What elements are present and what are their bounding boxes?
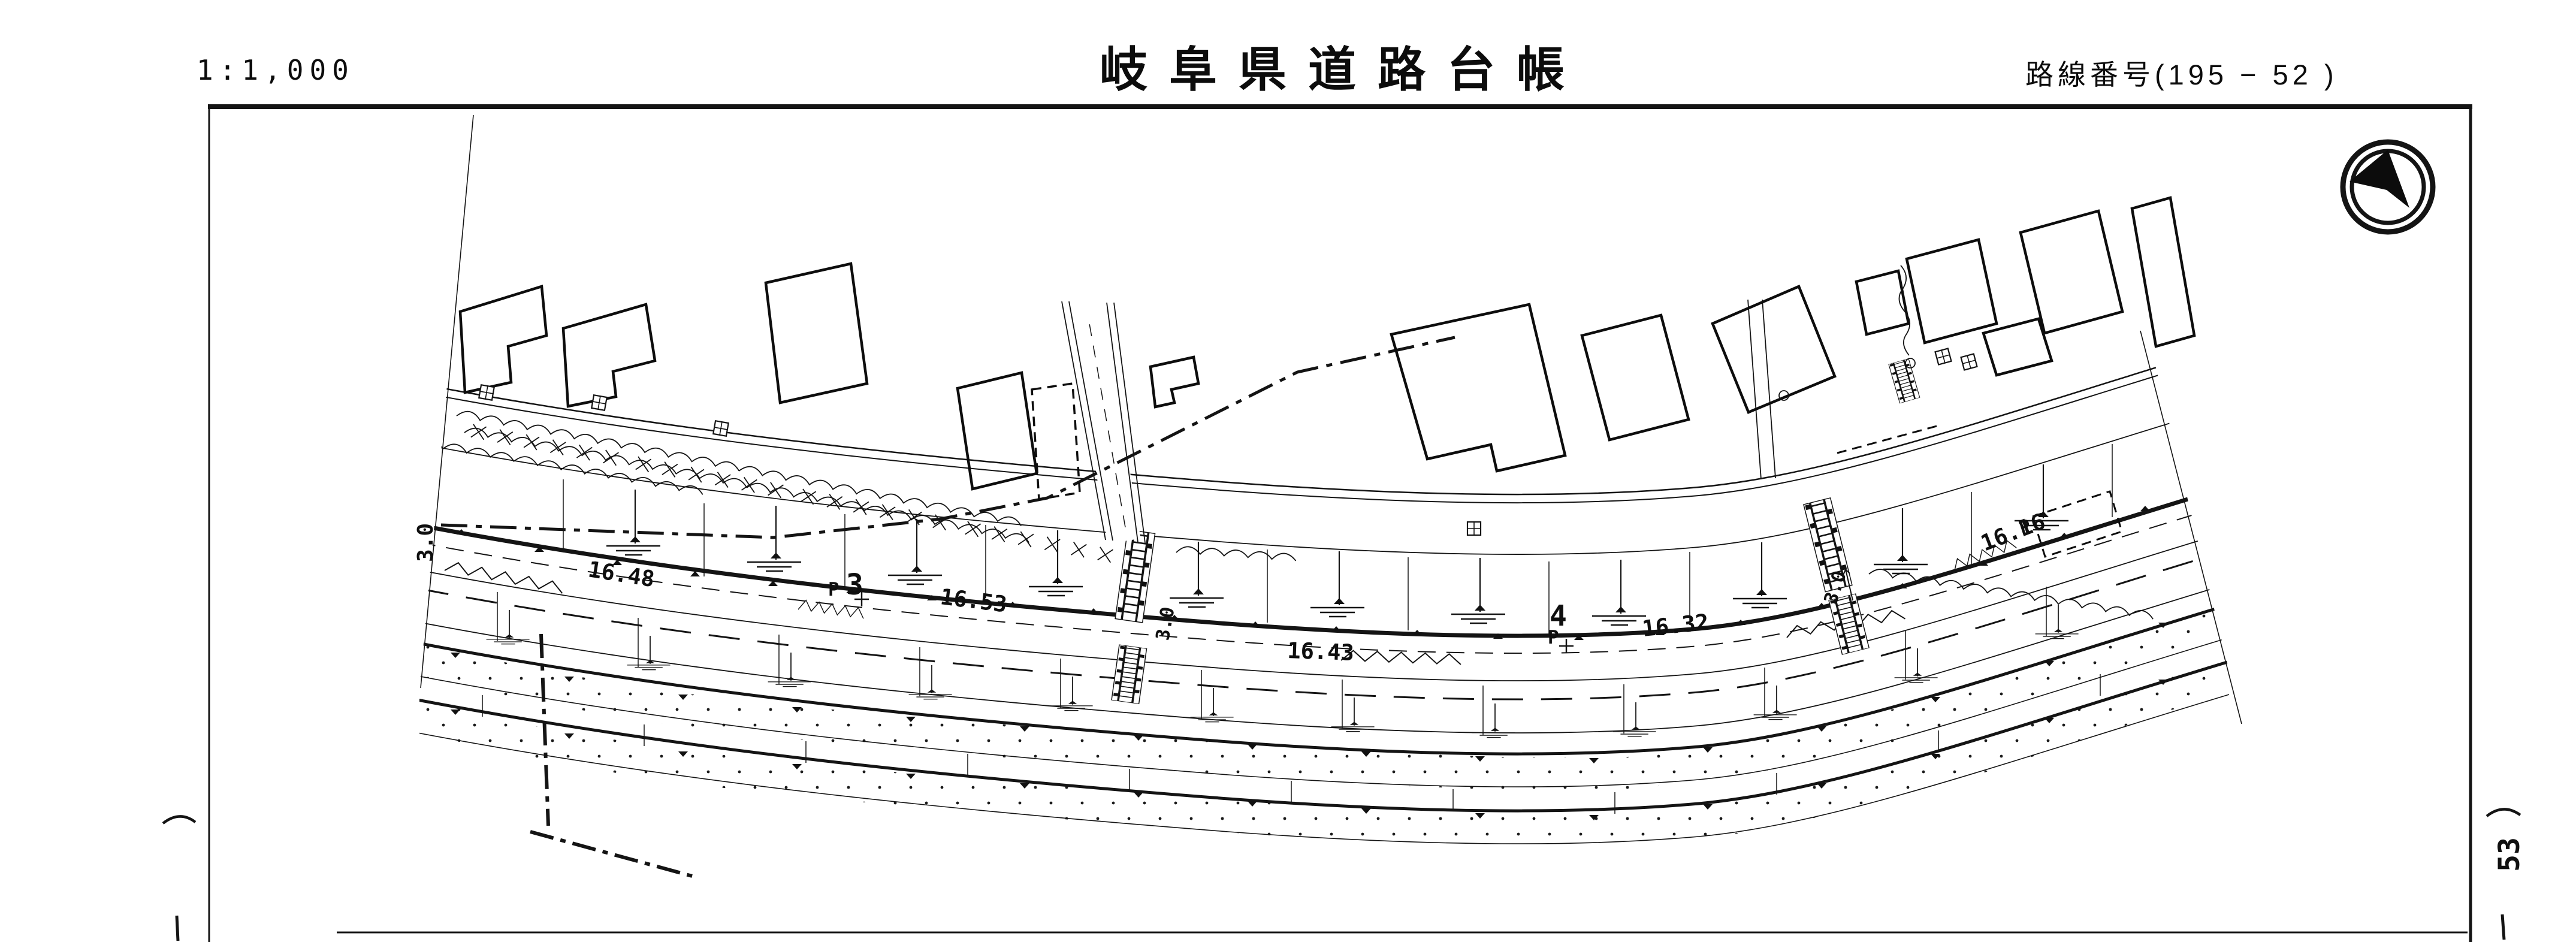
- right-margin-paren: [2487, 809, 2520, 816]
- elevation-16-16: 16.16: [1977, 508, 2049, 556]
- side-road-east: [1748, 300, 1775, 479]
- elevation-16-53: 16.53: [939, 584, 1008, 617]
- north-arrow-icon: [2343, 142, 2433, 232]
- width-label-left: 3.0: [413, 523, 438, 562]
- canal-bank-line: [418, 605, 2229, 754]
- stairs-symbols: [1112, 498, 1869, 704]
- point-label-1: P: [828, 579, 839, 600]
- road-ledger-sheet: 1:1,000 岐阜県道路台帳 路線番号(195 − 52 ) 53: [0, 0, 2576, 942]
- map-drawing: 3 4 P P P 16.48 16.53 16.43 16.32 16.16 …: [0, 0, 2576, 942]
- station-4-cross: [1559, 639, 1574, 653]
- elevation-16-43: 16.43: [1287, 638, 1355, 666]
- zigzag-hedges: [445, 538, 2016, 665]
- road-corridor: [418, 345, 2229, 848]
- buildings: [460, 198, 2194, 557]
- canal-bank-line-2: [418, 662, 2229, 811]
- survey-boundary-lines: [421, 115, 2242, 724]
- point-label-2: P: [1548, 627, 1559, 648]
- elevation-16-32: 16.32: [1641, 609, 1710, 642]
- left-margin-paren: [163, 816, 195, 823]
- building-dashed-shed: [1032, 384, 1080, 499]
- station-3-label: 3: [846, 568, 863, 602]
